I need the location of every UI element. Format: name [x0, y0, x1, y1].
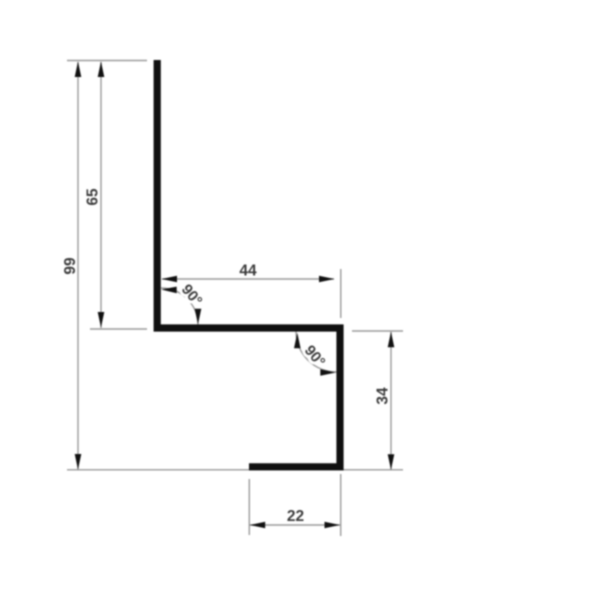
svg-text:22: 22	[287, 508, 304, 525]
svg-text:90°: 90°	[301, 342, 329, 370]
svg-text:99: 99	[62, 257, 79, 275]
svg-text:44: 44	[239, 263, 257, 280]
svg-text:34: 34	[375, 387, 392, 405]
svg-text:65: 65	[85, 188, 102, 206]
svg-text:90°: 90°	[178, 281, 206, 309]
